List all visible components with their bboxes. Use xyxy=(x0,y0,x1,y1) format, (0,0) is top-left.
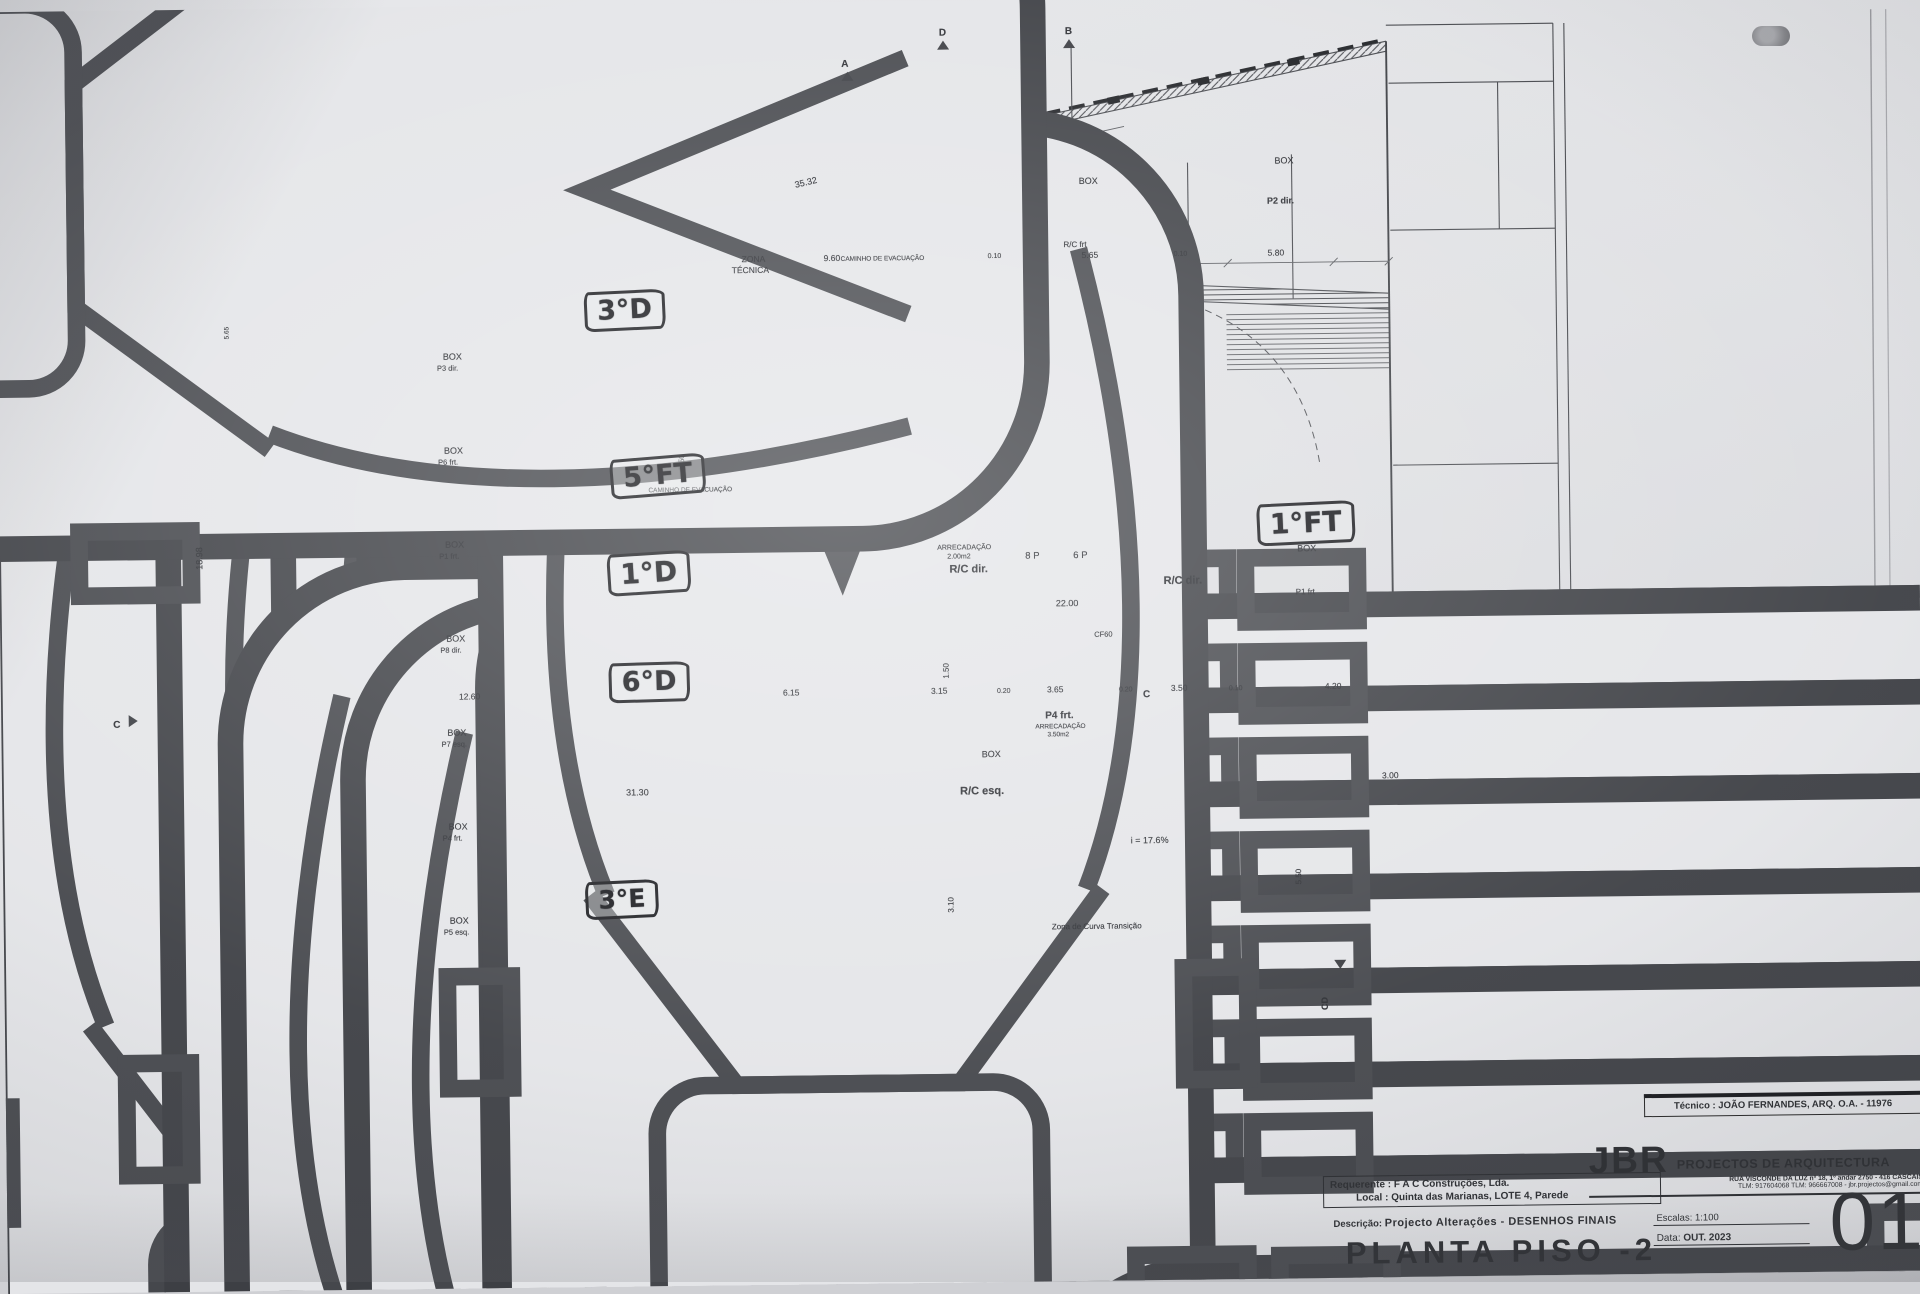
handwritten-annotation-6d: 6°D xyxy=(608,661,690,703)
dim-350: 3.50 xyxy=(1171,684,1188,693)
box-label: BOX xyxy=(982,750,1001,760)
dim-365: 3.65 xyxy=(1047,685,1064,694)
escala-value: 1:100 xyxy=(1695,1212,1719,1223)
door-code-label: CF60 xyxy=(1094,631,1112,639)
section-marker-c-left: C xyxy=(113,721,120,732)
dim-010: 0.10 xyxy=(1174,251,1188,259)
stall-code: P8 dir. xyxy=(440,647,461,655)
drawing-sheet: ZONA TÉCNICA CAMINHO DE EVACUAÇÃO CAMINH… xyxy=(0,0,1920,1294)
section-marker-cd: CD xyxy=(1321,997,1331,1010)
date-label: Data: xyxy=(1657,1233,1681,1244)
stall-code: P3 dir. xyxy=(437,365,458,373)
unit-label-p1-frt: P1 frt xyxy=(1296,588,1315,597)
dim-020: 0.20 xyxy=(1119,686,1133,694)
unit-label-p4-frt: P4 frt. xyxy=(1045,711,1073,722)
dim-020: 0.20 xyxy=(997,688,1011,696)
floor-plan-linework xyxy=(0,0,1920,1294)
annotation-text: 3°D xyxy=(597,293,653,327)
grid-marker-a-triangle xyxy=(841,72,853,81)
annotation-text: 3°E xyxy=(598,884,646,915)
requerente-value: F A C Construções, Lda. xyxy=(1394,1178,1510,1190)
box-label: BOX xyxy=(447,729,466,739)
handwritten-annotation-3e: 3°E xyxy=(585,879,660,920)
box-label: BOX xyxy=(443,353,462,363)
annotation-text: 5°FT xyxy=(622,457,693,494)
escala-label: Escalas: xyxy=(1656,1213,1692,1224)
local-value: Quinta das Marianas, LOTE 4, Parede xyxy=(1391,1190,1568,1203)
dim-315: 3.15 xyxy=(931,687,948,696)
dim-010: 0.10 xyxy=(988,253,1002,261)
unit-label-rc-esq: R/C esq. xyxy=(960,786,1004,798)
dim-1260: 12.60 xyxy=(459,692,480,701)
dim-550: 5.50 xyxy=(1295,869,1304,885)
box-label: BOX xyxy=(448,823,467,833)
requerente-label: Requerente : xyxy=(1330,1179,1391,1191)
scale-row: Escalas: 1:100 xyxy=(1653,1210,1809,1226)
title-block-client: Requerente : F A C Construções, Lda. Loc… xyxy=(1323,1172,1661,1208)
box-label: BOX xyxy=(1079,177,1098,187)
sheet-number: 01 xyxy=(1829,1175,1920,1270)
stall-code: P6 frt. xyxy=(438,459,458,467)
box-label: BOX xyxy=(445,541,464,551)
zona-tecnica-label-2: TÉCNICA xyxy=(732,266,769,275)
dim-565-left: 5.65 xyxy=(224,327,231,340)
annotation-text: 6°D xyxy=(621,665,677,698)
unit-label-rc-dir-room: R/C dir. xyxy=(949,564,988,576)
ramp-slope-label: i = 17.6% xyxy=(1131,836,1169,846)
binder-clip-mark xyxy=(1752,26,1790,46)
dim-010: 0.10 xyxy=(1229,685,1243,693)
unit-label-p2-dir: P2 dir. xyxy=(1267,196,1294,206)
section-marker-c-right: C xyxy=(1143,690,1150,701)
stall-code: P4 frt. xyxy=(443,835,463,843)
grid-marker-d-triangle xyxy=(937,41,949,50)
stall-code: P1 frt. xyxy=(439,553,459,561)
dim-960: 9.60 xyxy=(824,254,841,263)
zona-tecnica-label-1: ZONA xyxy=(742,255,766,264)
dim-310: 3.10 xyxy=(947,897,956,913)
level-value-label: 22.00 xyxy=(1056,599,1079,609)
parked-cars xyxy=(0,0,1920,1294)
dim-1898: 18.98 xyxy=(195,547,205,570)
drawing-title: PLANTA PISO -2 xyxy=(1346,1232,1658,1272)
dim-150: 1.50 xyxy=(943,663,952,679)
handwritten-annotation-1ft: 1°FT xyxy=(1256,500,1356,547)
annotation-text: 1°D xyxy=(619,554,678,591)
grid-marker-a: A xyxy=(841,60,848,71)
dim-615: 6.15 xyxy=(783,688,800,697)
date-row: Data: OUT. 2023 xyxy=(1654,1230,1810,1246)
box-label: BOX xyxy=(446,635,465,645)
elevator-6p-label: 6 P xyxy=(1073,551,1087,561)
section-marker-c-left-triangle xyxy=(129,715,138,727)
box-label: BOX xyxy=(1274,156,1293,166)
unit-label-rc-frt: R/C frt xyxy=(1063,241,1086,250)
curve-transition-label: Zona de Curva Transição xyxy=(1052,922,1142,931)
handwritten-annotation-3d: 3°D xyxy=(583,289,665,333)
dim-420: 4.20 xyxy=(1325,682,1342,691)
stall-code: P5 esq. xyxy=(444,928,470,936)
grid-marker-d: D xyxy=(939,29,946,40)
box-label: BOX xyxy=(450,916,469,926)
firm-tagline: PROJECTOS DE ARQUITECTURA xyxy=(1677,1156,1890,1176)
dim-580: 5.80 xyxy=(1268,248,1285,257)
evacuation-path-label-top: CAMINHO DE EVACUAÇÃO xyxy=(841,256,925,264)
handwritten-annotation-5ft: 5°FT xyxy=(609,452,707,500)
stall-code: P7 esq. xyxy=(441,741,467,749)
date-value: OUT. 2023 xyxy=(1683,1232,1731,1244)
local-label: Local : xyxy=(1356,1192,1388,1203)
dim-3130: 31.30 xyxy=(626,788,649,798)
grid-marker-b-triangle xyxy=(1063,39,1075,48)
handwritten-annotation-1d: 1°D xyxy=(606,550,691,597)
dim-565: 5.65 xyxy=(1082,251,1099,260)
annotation-text: 1°FT xyxy=(1269,505,1342,541)
dim-300: 3.00 xyxy=(1382,771,1399,780)
section-marker-cd-triangle xyxy=(1334,960,1346,969)
storage-area-1: 2.00m2 xyxy=(947,553,970,561)
box-label: BOX xyxy=(444,447,463,457)
unit-label-rc-dir-car: R/C dir. xyxy=(1164,576,1203,588)
box-label: BOX xyxy=(1297,544,1316,554)
storage-area-2: 3.50m2 xyxy=(1047,732,1069,739)
descricao-label: Descrição: xyxy=(1333,1218,1382,1230)
storage-label-1: ARRECADAÇÃO xyxy=(937,544,991,552)
grid-marker-b: B xyxy=(1065,27,1072,38)
title-block-technician: Técnico : JOÃO FERNANDES, ARQ. O.A. - 11… xyxy=(1644,1091,1920,1117)
elevator-8p-label: 8 P xyxy=(1025,551,1039,561)
